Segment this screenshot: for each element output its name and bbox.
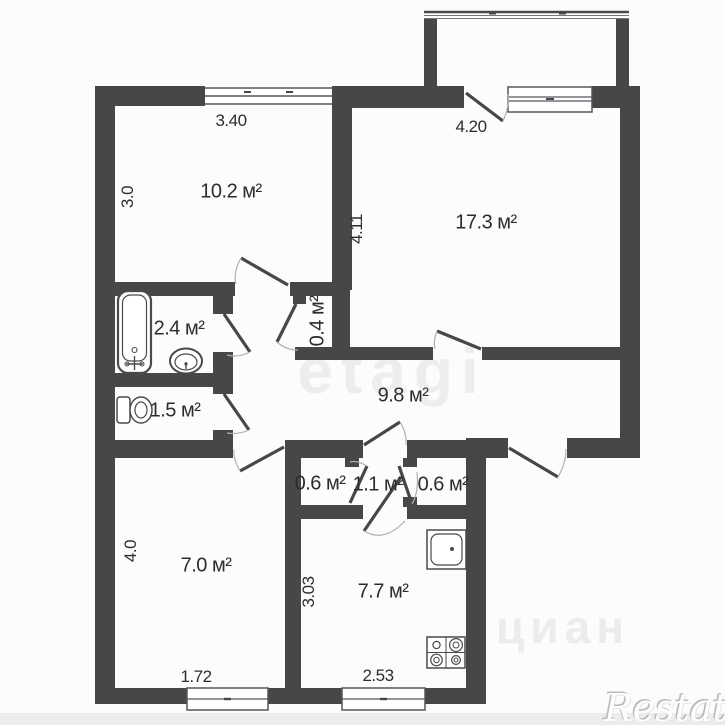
- room-label-bottom-left: 7.0 м²: [181, 555, 232, 578]
- room-label-top-left: 10.2 м²: [200, 181, 261, 204]
- bath-sink-icon: [170, 349, 202, 374]
- dim-bottom-left-depth: 4.0: [121, 540, 141, 562]
- dim-top-right-width: 4.20: [455, 117, 486, 137]
- dim-kitchen-window: 2.53: [362, 666, 393, 686]
- room-label-closet: 0.4 м²: [307, 296, 330, 347]
- floor-plan-page: etagi циан: [0, 0, 725, 725]
- dim-kitchen-depth: 3.03: [299, 576, 319, 607]
- vestibule-hall-door: [364, 422, 406, 445]
- toilet-door: [224, 394, 249, 434]
- balcony-railing: [424, 11, 629, 19]
- bathtub-icon: [118, 291, 151, 373]
- doors: [224, 93, 566, 535]
- room-label-vestibule: 1.1 м²: [353, 474, 404, 497]
- dim-top-left-depth: 3.0: [118, 186, 138, 208]
- room-label-top-right: 17.3 м²: [455, 212, 516, 235]
- dim-top-left-width: 3.40: [215, 111, 246, 131]
- room-label-kitchen: 7.7 м²: [358, 581, 409, 604]
- closet-0-4-door: [277, 304, 298, 350]
- room-label-storage-right: 0.6 м²: [418, 474, 469, 497]
- window-top-right: [508, 87, 592, 112]
- window-top-left: [205, 86, 332, 106]
- room-label-hallway: 9.8 м²: [378, 385, 429, 408]
- room-label-storage-left: 0.6 м²: [295, 473, 346, 496]
- stove-icon: [427, 637, 465, 668]
- floor-plan-drawing: [0, 0, 725, 725]
- kitchen-sink-icon: [427, 530, 466, 569]
- windows: [187, 11, 629, 710]
- dim-bottom-left-window: 1.72: [180, 667, 211, 687]
- bathroom-door: [224, 314, 250, 356]
- dim-top-right-depth: 4.11: [347, 214, 367, 244]
- watermark-restate-logo: Restate: [604, 686, 725, 725]
- room-label-toilet: 1.5 м²: [150, 400, 201, 423]
- toilet-icon: [117, 397, 152, 423]
- window-kitchen: [342, 688, 425, 710]
- window-bottom-left: [187, 688, 268, 710]
- room-label-bathroom: 2.4 м²: [154, 318, 205, 341]
- room-10-2-door: [235, 258, 288, 285]
- entrance-door: [509, 448, 566, 477]
- room-17-3-door: [434, 331, 481, 349]
- room-7-0-door: [234, 447, 284, 471]
